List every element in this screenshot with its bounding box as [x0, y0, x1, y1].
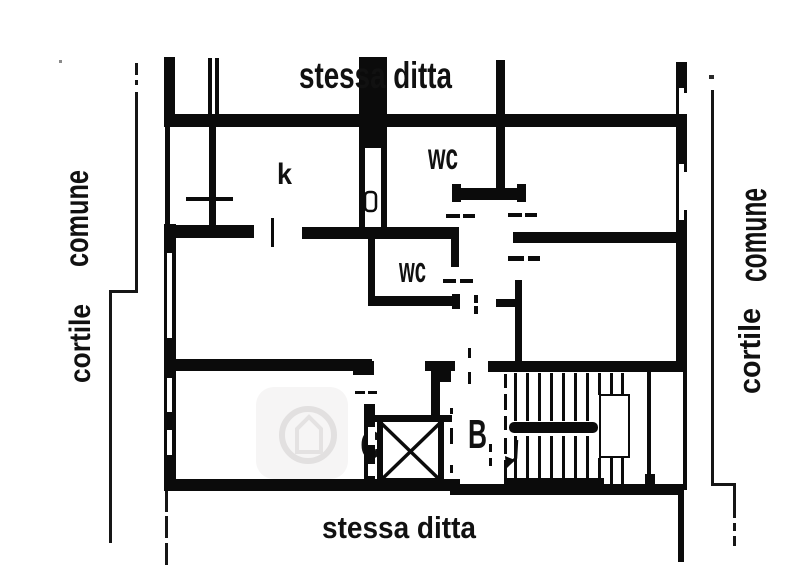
svg-text:cortile: cortile — [732, 308, 767, 394]
svg-text:stessa ditta: stessa ditta — [322, 510, 477, 545]
svg-text:comune: comune — [58, 170, 95, 267]
svg-text:wc: wc — [398, 249, 426, 290]
svg-text:B: B — [468, 411, 487, 457]
svg-text:wc: wc — [427, 136, 458, 177]
svg-text:stessa ditta: stessa ditta — [299, 55, 452, 96]
svg-text:comune: comune — [733, 188, 775, 282]
svg-text:k: k — [277, 158, 292, 191]
svg-text:cortile: cortile — [64, 304, 97, 383]
